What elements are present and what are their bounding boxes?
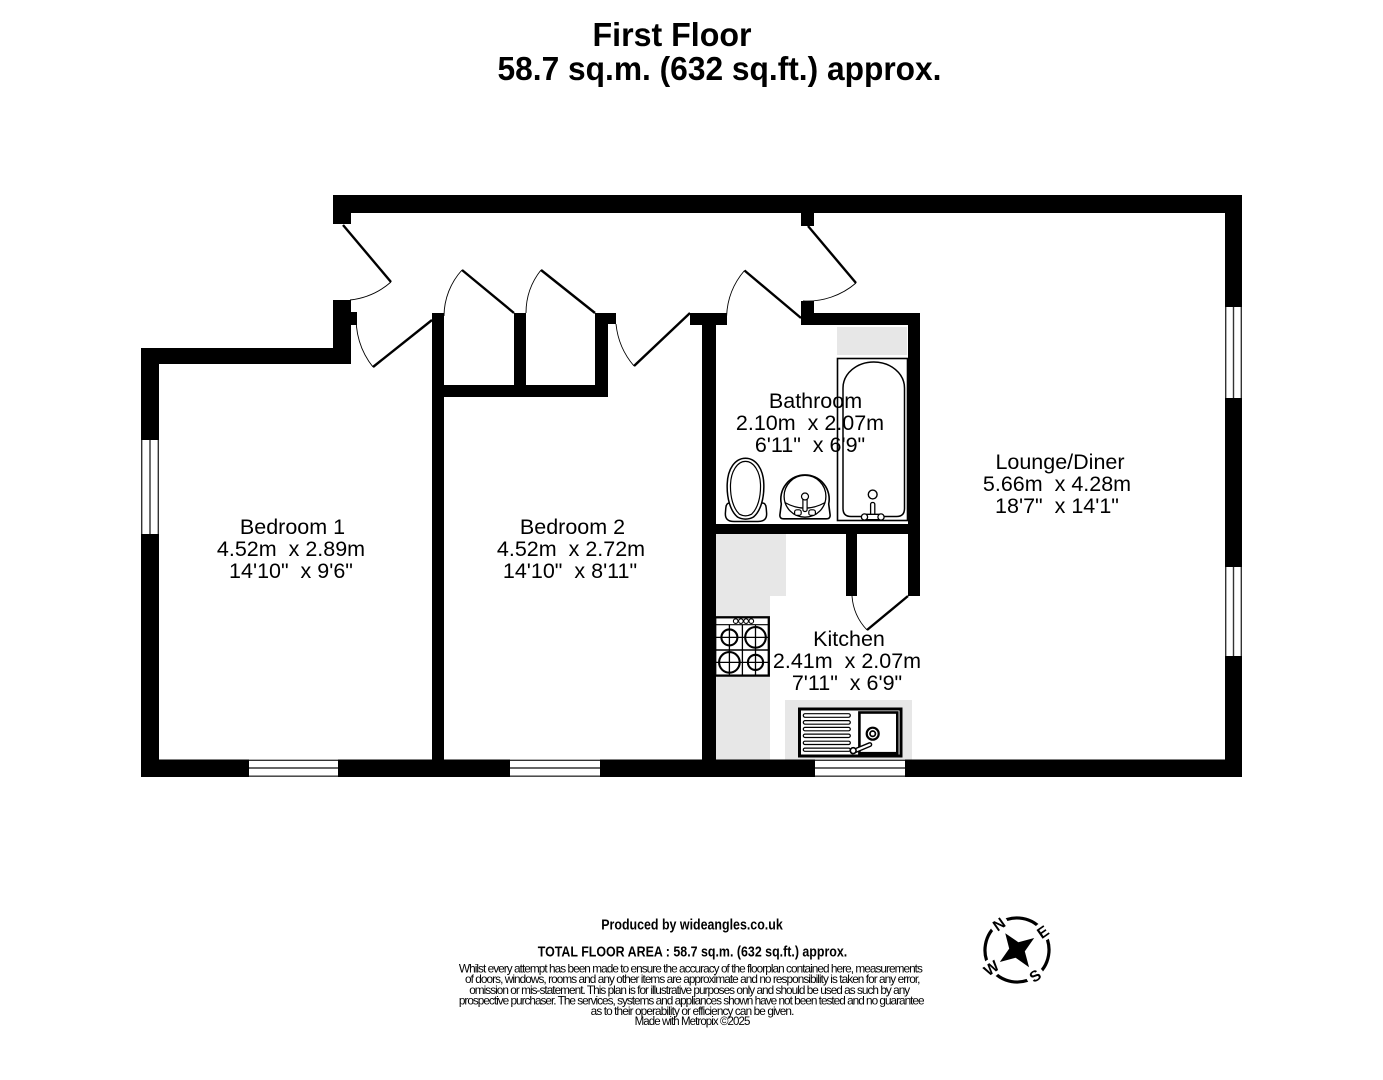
svg-text:Made with Metropix ©2025: Made with Metropix ©2025	[635, 1016, 751, 1028]
svg-text:Bathroom: Bathroom	[769, 389, 862, 413]
svg-text:7'11" x 6'9": 7'11" x 6'9"	[792, 671, 902, 695]
svg-text:5.66m x 4.28m: 5.66m x 4.28m	[983, 472, 1131, 496]
svg-text:58.7 sq.m. (632 sq.ft.) approx: 58.7 sq.m. (632 sq.ft.) approx.	[498, 50, 942, 87]
svg-text:TOTAL FLOOR AREA : 58.7 sq.m.: TOTAL FLOOR AREA : 58.7 sq.m. (632 sq.ft…	[538, 945, 848, 961]
svg-text:4.52m x 2.72m: 4.52m x 2.72m	[497, 537, 645, 561]
svg-text:Produced by wideangles.co.uk: Produced by wideangles.co.uk	[601, 918, 783, 934]
svg-text:2.10m x 2.07m: 2.10m x 2.07m	[736, 411, 884, 435]
svg-text:2.41m x 2.07m: 2.41m x 2.07m	[773, 649, 921, 673]
svg-text:14'10" x 9'6": 14'10" x 9'6"	[229, 559, 353, 583]
svg-text:First Floor: First Floor	[593, 16, 752, 53]
svg-text:14'10" x 8'11": 14'10" x 8'11"	[503, 559, 637, 583]
svg-text:Bedroom 2: Bedroom 2	[520, 515, 625, 539]
svg-text:Lounge/Diner: Lounge/Diner	[995, 450, 1124, 474]
svg-text:4.52m x 2.89m: 4.52m x 2.89m	[217, 537, 365, 561]
svg-text:6'11" x 6'9": 6'11" x 6'9"	[755, 433, 865, 457]
svg-text:18'7" x 14'1": 18'7" x 14'1"	[995, 494, 1119, 518]
svg-text:Kitchen: Kitchen	[813, 627, 885, 651]
svg-text:Bedroom 1: Bedroom 1	[240, 515, 345, 539]
